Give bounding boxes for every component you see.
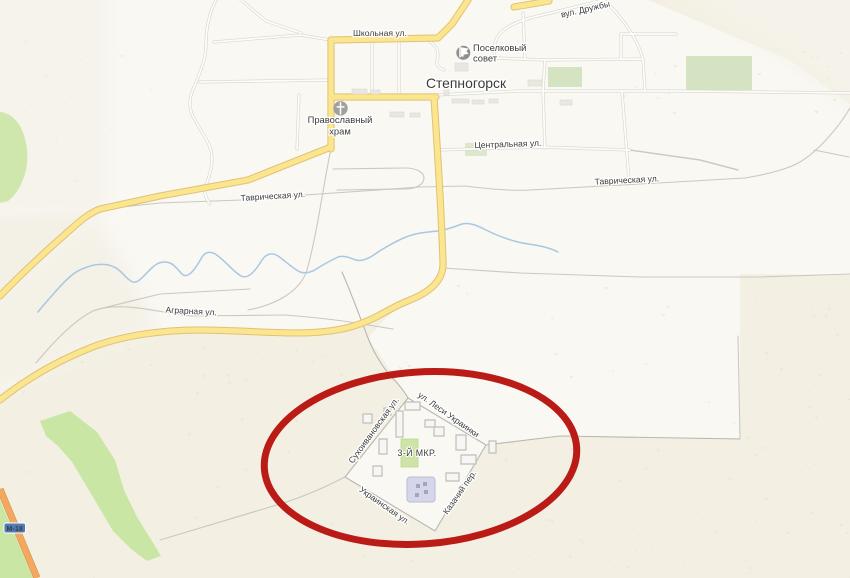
- svg-text:Школьная ул.: Школьная ул.: [353, 28, 407, 38]
- svg-text:Степногорск: Степногорск: [426, 75, 507, 91]
- svg-text:Православный: Православный: [308, 114, 373, 125]
- svg-text:М-18: М-18: [7, 526, 24, 533]
- svg-text:храм: храм: [329, 126, 351, 137]
- svg-text:совет: совет: [473, 53, 498, 64]
- svg-text:3-Й МКР.: 3-Й МКР.: [398, 447, 437, 458]
- svg-text:Поселковый: Поселковый: [473, 42, 526, 53]
